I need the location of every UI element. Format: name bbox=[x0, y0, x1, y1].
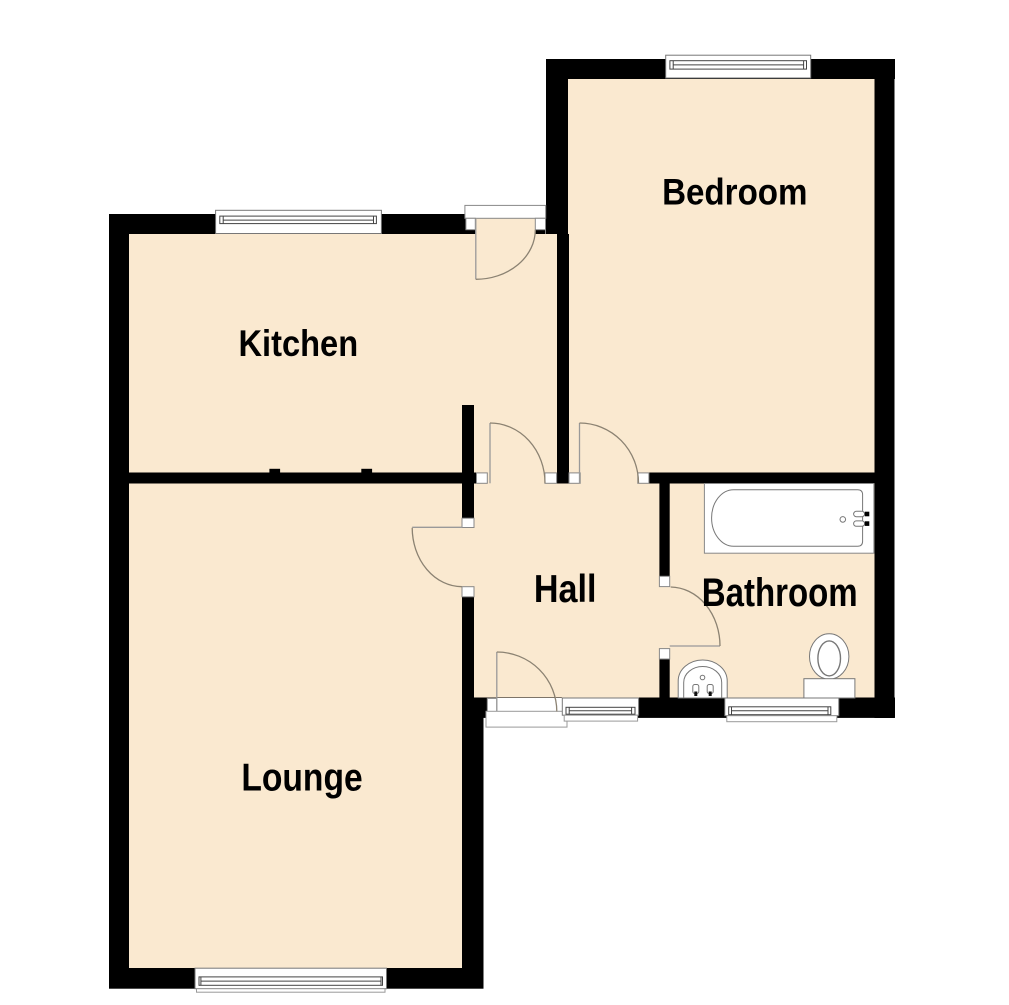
svg-text:Bathroom: Bathroom bbox=[702, 570, 858, 614]
svg-text:Hall: Hall bbox=[534, 567, 597, 610]
svg-text:Kitchen: Kitchen bbox=[238, 323, 358, 364]
svg-text:Lounge: Lounge bbox=[241, 755, 362, 799]
svg-text:Bedroom: Bedroom bbox=[662, 172, 807, 213]
